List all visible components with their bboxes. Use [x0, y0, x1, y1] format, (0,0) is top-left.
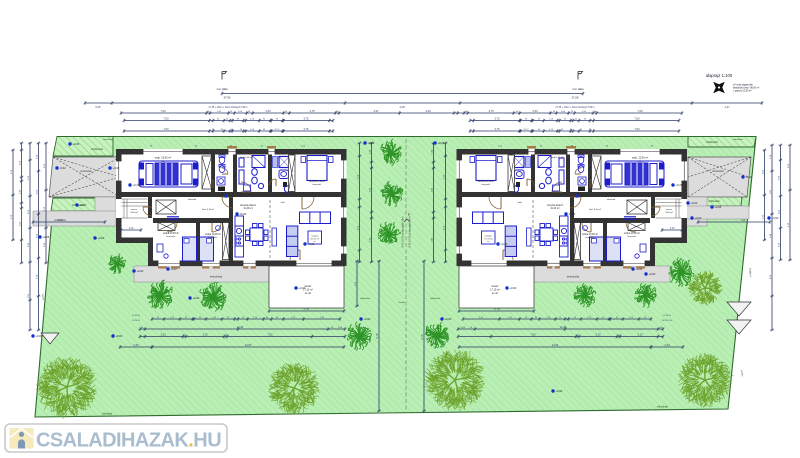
svg-text:4,46: 4,46 [425, 109, 431, 113]
svg-text:+0,00: +0,00 [116, 334, 123, 338]
svg-text:+0,06: +0,06 [73, 142, 80, 146]
svg-text:3,60 m²: 3,60 m² [665, 211, 673, 214]
svg-text:+0,00: +0,00 [501, 242, 508, 246]
svg-text:szoba 12,15m²: szoba 12,15m² [478, 180, 494, 183]
svg-text:+0,05: +0,05 [715, 205, 722, 209]
svg-text:szoba 10,05 m²: szoba 10,05 m² [163, 232, 179, 235]
svg-text:3,10: 3,10 [595, 332, 601, 336]
svg-text:3,75: 3,75 [494, 127, 500, 131]
svg-text:27,06: 27,06 [572, 96, 579, 100]
svg-text:7,00: 7,00 [163, 116, 169, 120]
svg-text:előszoba: előszoba [607, 199, 616, 201]
svg-text:27,06: 27,06 [224, 96, 231, 100]
svg-text:7,00: 7,00 [530, 332, 536, 336]
svg-text:3,60 m²: 3,60 m² [130, 211, 138, 214]
svg-text:térburkolat: térburkolat [210, 275, 223, 279]
svg-text:fürdő 5,30 m²: fürdő 5,30 m² [551, 156, 564, 159]
svg-text:±0,00: ±0,00 [240, 212, 247, 216]
svg-text:zöldterület: zöldterület [708, 200, 720, 203]
svg-text:-0,02: -0,02 [580, 194, 587, 198]
svg-text:3,75: 3,75 [488, 109, 494, 113]
svg-text:+0,00: +0,00 [36, 334, 43, 338]
svg-text:zöldterület: zöldterület [706, 140, 718, 144]
svg-text:lam.park.: lam.park. [167, 235, 176, 238]
svg-text:fürdő 5,30 m²: fürdő 5,30 m² [240, 156, 253, 159]
svg-text:+0,00: +0,00 [80, 203, 87, 207]
svg-text:lam.park.: lam.park. [628, 235, 637, 238]
svg-text:térburkolat: térburkolat [712, 170, 724, 173]
svg-text:+0,00: +0,00 [98, 236, 105, 240]
svg-text:+0,32: +0,32 [299, 286, 306, 290]
svg-text:90 10: 90 10 [523, 129, 529, 131]
svg-text:+0,32: +0,32 [510, 286, 517, 290]
svg-text:-0,02: -0,02 [746, 175, 753, 179]
svg-text:CSALADIHAZAK.HU: CSALADIHAZAK.HU [36, 430, 221, 452]
svg-text:3,10: 3,10 [160, 332, 166, 336]
svg-text:2,10: 2,10 [670, 228, 675, 230]
svg-text:5,78: 5,78 [494, 307, 500, 311]
svg-text:2,10: 2,10 [129, 228, 134, 230]
svg-text:+0,00: +0,00 [772, 216, 779, 220]
svg-text:4,97: 4,97 [373, 109, 379, 113]
svg-text:+0,00: +0,00 [445, 317, 452, 321]
svg-text:szoba 12,15m²: szoba 12,15m² [309, 180, 325, 183]
svg-text:11,40 m²: 11,40 m² [550, 207, 559, 210]
svg-text:szoba 10,05 m²: szoba 10,05 m² [582, 233, 598, 236]
svg-text:7,00: 7,00 [634, 127, 640, 131]
svg-text:közl.: közl. [281, 202, 286, 204]
svg-text:17,35 + 16cm + 16cm hőszig=17,: 17,35 + 16cm + 16cm hőszig=17,65 m [555, 107, 594, 109]
svg-text:szgk. 22,60 m²: szgk. 22,60 m² [155, 157, 172, 160]
svg-text:20 20 20 40: 20 20 20 40 [662, 320, 673, 322]
svg-text:térburkolat: térburkolat [567, 275, 580, 279]
svg-text:2,50: 2,50 [532, 109, 538, 113]
svg-text:7,00: 7,00 [637, 109, 643, 113]
svg-text:sóz: sóz [161, 161, 164, 163]
svg-text:17,35 + 16cm + 16cm hőszig=17,: 17,35 + 16cm + 16cm hőszig=17,65 m [208, 107, 247, 109]
svg-text:7,00: 7,00 [267, 332, 273, 336]
svg-text:S-00-19-15-ös kiszolgáló 16 m: S-00-19-15-ös kiszolgáló 16 m [403, 216, 405, 247]
svg-text:S-00-19-15-ös kiszolgáló 16 m: S-00-19-15-ös kiszolgáló 16 m [410, 216, 412, 247]
svg-text:5,56: 5,56 [58, 220, 63, 222]
svg-text:90 10: 90 10 [274, 129, 280, 131]
svg-text:-0,02: -0,02 [229, 194, 236, 198]
svg-text:11,40 m²: 11,40 m² [243, 207, 252, 210]
svg-text:+0,00: +0,00 [636, 267, 643, 271]
svg-text:közl. 6,10 m²: közl. 6,10 m² [202, 208, 214, 211]
svg-text:-0,02: -0,02 [171, 267, 178, 271]
svg-text:útburkolat: útburkolat [103, 138, 113, 141]
svg-text:2,40: 2,40 [133, 343, 139, 347]
svg-text:és rét: és rét [492, 292, 499, 295]
svg-text:+0,00: +0,00 [556, 389, 563, 393]
svg-text:44 20 20: 44 20 20 [132, 320, 141, 322]
svg-text:3,75: 3,75 [303, 127, 309, 131]
svg-text:+0,00: +0,00 [695, 216, 702, 220]
svg-text:5,78: 5,78 [303, 307, 309, 311]
svg-text:7,00: 7,00 [160, 109, 166, 113]
svg-text:lakóépület össz: 98,00 m²: lakóépület össz: 98,00 m² [733, 87, 759, 90]
svg-text:zöldterület: zöldterület [430, 297, 440, 300]
svg-text:útburkolat: útburkolat [733, 138, 743, 141]
svg-text:25,70 m²: 25,70 m² [310, 237, 319, 240]
svg-text:1.sz. lakás: 1.sz. lakás [216, 88, 228, 91]
svg-text:±0,00: ±0,00 [569, 212, 576, 216]
svg-text:+0,15: +0,15 [676, 183, 683, 187]
svg-text:12,20: 12,20 [560, 325, 567, 329]
svg-text:+0,15: +0,15 [133, 183, 140, 187]
svg-text:+0,00: +0,00 [364, 317, 371, 321]
svg-text:+0,06: +0,06 [368, 141, 375, 145]
svg-text:nappali: nappali [311, 236, 319, 238]
svg-text:sóz: sóz [638, 161, 641, 163]
svg-text:térburkolat: térburkolat [80, 170, 92, 173]
svg-text:terasz: terasz [131, 208, 137, 211]
svg-text:1,12: 1,12 [741, 220, 746, 222]
svg-text:m² nettó alapterület: m² nettó alapterület [733, 84, 753, 87]
svg-text:térburkolat: térburkolat [657, 406, 668, 409]
svg-text:lam.park.: lam.park. [313, 183, 322, 186]
svg-text:7,00: 7,00 [634, 116, 640, 120]
svg-text:3,48: 3,48 [399, 105, 405, 109]
svg-text:F: F [408, 213, 410, 217]
svg-text:+ garázs 22,60 m²: + garázs 22,60 m² [733, 90, 752, 93]
svg-text:előszoba: előszoba [188, 199, 197, 201]
svg-text:+0,00: +0,00 [649, 272, 656, 276]
svg-text:11,47: 11,47 [422, 333, 424, 339]
svg-text:3,10: 3,10 [637, 332, 643, 336]
svg-text:lam.park.: lam.park. [586, 236, 595, 239]
svg-text:és rét: és rét [305, 292, 312, 295]
svg-text:+0,00: +0,00 [113, 166, 120, 170]
svg-text:11,47: 11,47 [377, 332, 379, 338]
svg-text:szgk. 22,60 m²: szgk. 22,60 m² [632, 157, 649, 160]
svg-text:alaprajz 1:100: alaprajz 1:100 [706, 73, 733, 78]
svg-text:szoba 10,05 m²: szoba 10,05 m² [205, 233, 221, 236]
svg-text:+0,05: +0,05 [43, 235, 50, 239]
svg-text:3,75: 3,75 [494, 116, 500, 120]
svg-text:7,00: 7,00 [163, 127, 169, 131]
svg-text:lam.park.: lam.park. [209, 236, 218, 239]
svg-text:12,20: 12,20 [237, 325, 244, 329]
svg-text:+0,00: +0,00 [308, 242, 315, 246]
svg-text:terasz: terasz [666, 208, 672, 211]
svg-text:zöldterület: zöldterület [360, 297, 370, 300]
svg-text:1,47: 1,47 [724, 105, 730, 109]
svg-text:lam.park.: lam.park. [482, 183, 491, 186]
svg-text:2.sz. lakás: 2.sz. lakás [572, 88, 584, 91]
svg-text:3,10: 3,10 [202, 332, 208, 336]
svg-text:2,50: 2,50 [265, 109, 271, 113]
svg-text:+0,00: +0,00 [137, 269, 144, 273]
svg-text:közl.: közl. [518, 202, 523, 204]
svg-text:3,75: 3,75 [309, 109, 315, 113]
svg-text:3,75: 3,75 [303, 116, 309, 120]
svg-text:14,00: 14,00 [552, 343, 559, 347]
svg-text:közl. 6,10 m²: közl. 6,10 m² [589, 208, 601, 211]
svg-text:2,40: 2,40 [664, 343, 670, 347]
svg-text:-0,02: -0,02 [60, 166, 67, 170]
svg-text:+0,00: +0,00 [691, 201, 698, 205]
svg-text:zöldterület: zöldterület [91, 147, 103, 151]
svg-text:5,45: 5,45 [95, 105, 101, 109]
svg-text:20 20 20: 20 20 20 [663, 315, 672, 317]
svg-text:20 20 20: 20 20 20 [132, 315, 141, 317]
svg-text:+0,00: +0,00 [193, 296, 200, 300]
svg-text:útburkolat: útburkolat [102, 413, 112, 416]
svg-text:szoba 10,05 m²: szoba 10,05 m² [624, 232, 640, 235]
svg-text:14,00: 14,00 [245, 343, 252, 347]
svg-text:kerítés: kerítés [399, 301, 406, 304]
svg-text:+0,06: +0,06 [438, 141, 445, 145]
